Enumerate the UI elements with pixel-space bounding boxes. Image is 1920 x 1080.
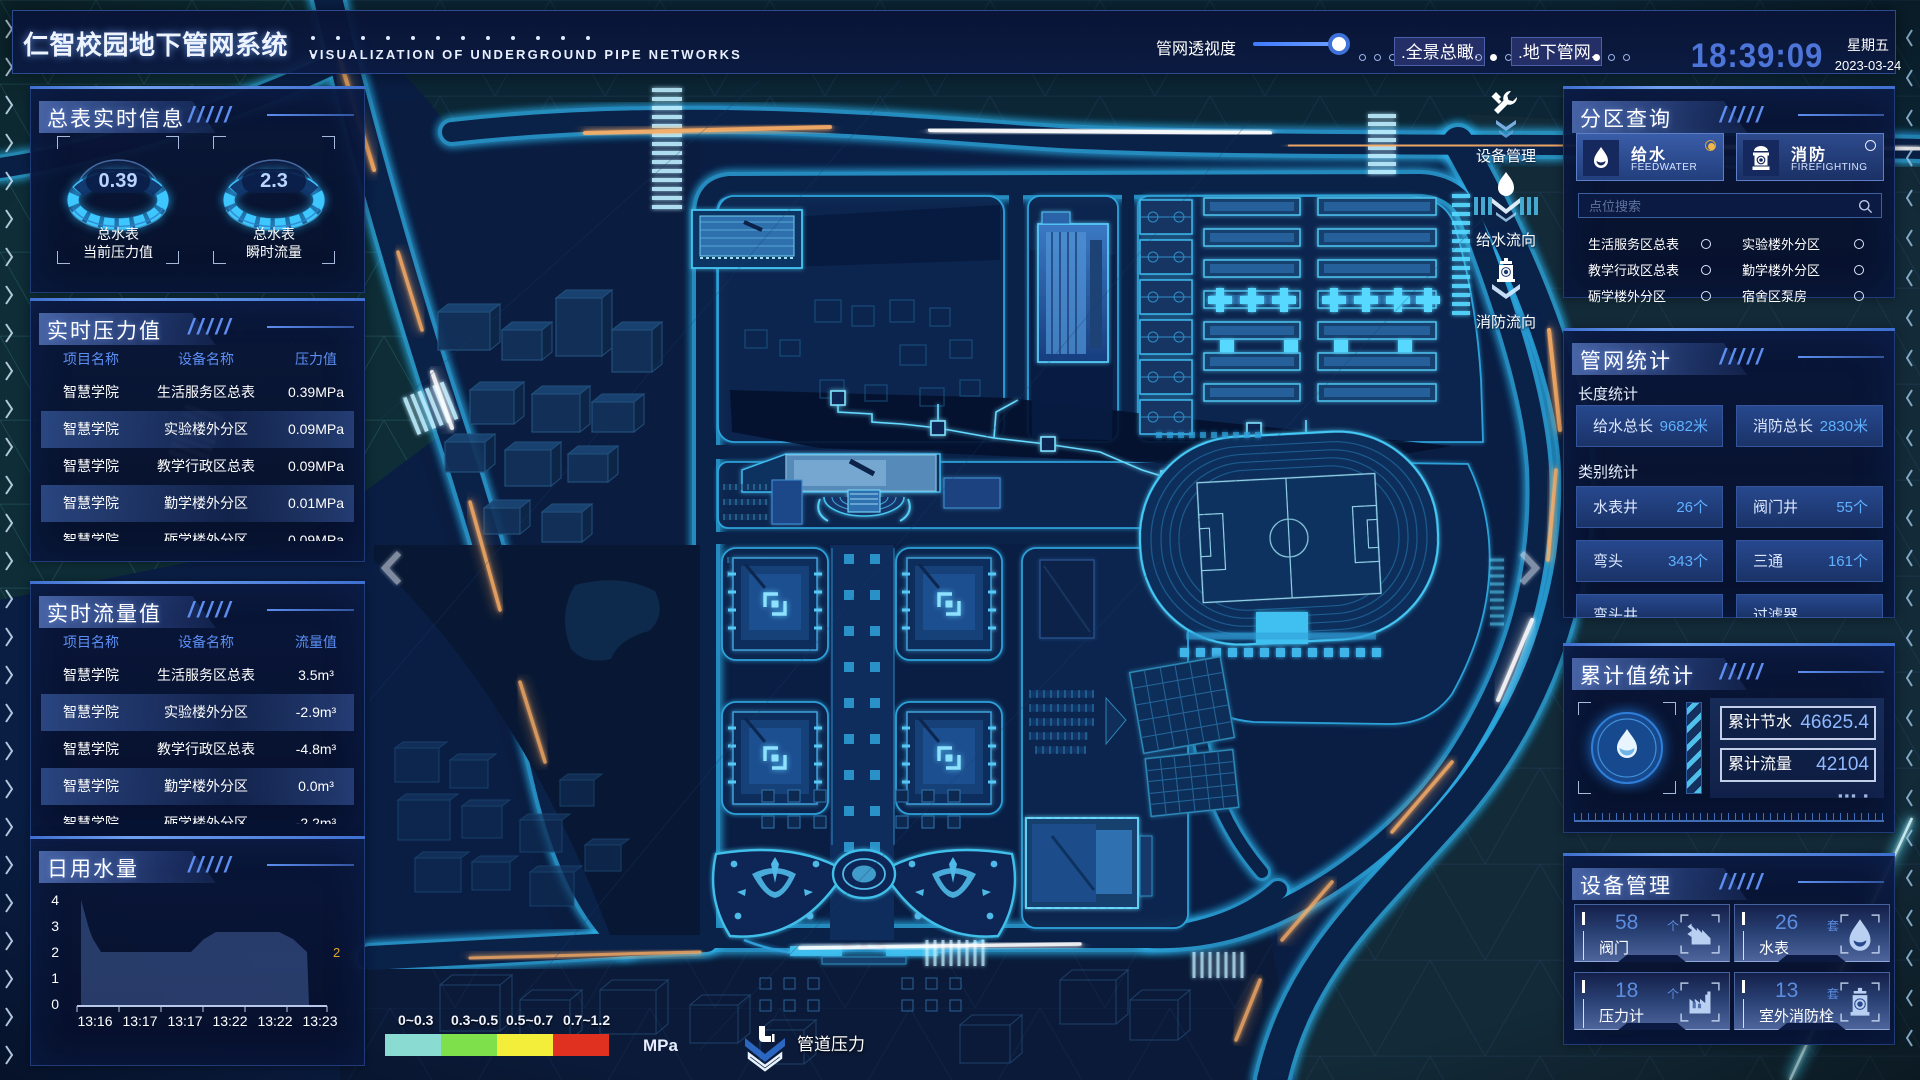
svg-text:0.39: 0.39	[99, 170, 138, 192]
svg-text:0: 0	[51, 996, 59, 1012]
svg-text:13:17: 13:17	[122, 1013, 157, 1029]
svg-text:总水表: 总水表	[97, 226, 139, 242]
svg-text:13:17: 13:17	[167, 1013, 202, 1029]
svg-text:瞬时流量: 瞬时流量	[246, 244, 302, 260]
svg-text:2: 2	[333, 945, 340, 960]
svg-text:13:23: 13:23	[302, 1013, 337, 1029]
svg-text:13:22: 13:22	[257, 1013, 292, 1029]
svg-text:1: 1	[51, 970, 59, 986]
svg-text:13:16: 13:16	[77, 1013, 112, 1029]
svg-text:2: 2	[51, 944, 59, 960]
svg-text:13:22: 13:22	[212, 1013, 247, 1029]
svg-text:2.3: 2.3	[260, 170, 288, 192]
svg-text:总水表: 总水表	[253, 226, 295, 242]
svg-text:4: 4	[51, 892, 59, 908]
svg-text:当前压力值: 当前压力值	[83, 244, 153, 260]
svg-text:3: 3	[51, 918, 59, 934]
